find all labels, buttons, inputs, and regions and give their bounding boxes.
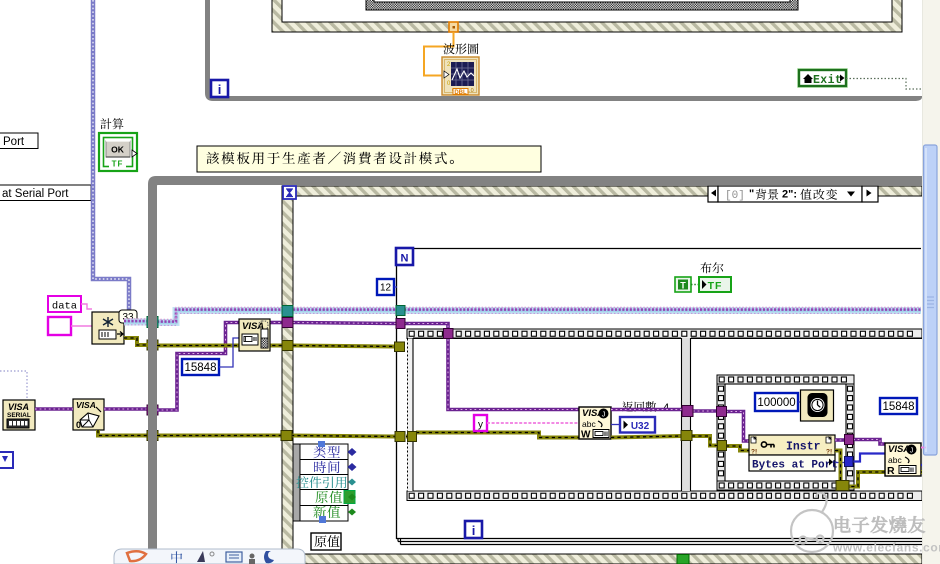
- svg-text:T: T: [680, 281, 686, 291]
- svg-text:VISA: VISA: [8, 402, 29, 412]
- svg-text:W: W: [581, 430, 591, 441]
- svg-text:／: ／: [328, 151, 342, 166]
- svg-text:15848: 15848: [883, 401, 915, 413]
- svg-text:?!: ?!: [826, 449, 832, 456]
- svg-text:J: J: [602, 412, 606, 419]
- svg-text:N: N: [401, 253, 409, 265]
- svg-text:abc: abc: [888, 455, 902, 465]
- svg-text:TF: TF: [112, 160, 124, 169]
- svg-text:?!: ?!: [751, 449, 757, 456]
- svg-text:J: J: [910, 448, 914, 455]
- svg-text:12: 12: [380, 283, 392, 294]
- svg-text:DBL: DBL: [454, 90, 467, 96]
- svg-text:www.elecfans.com: www.elecfans.com: [832, 541, 940, 555]
- svg-text:[0]: [0]: [725, 190, 745, 202]
- svg-text:R: R: [887, 465, 895, 477]
- svg-text:i: i: [472, 523, 476, 538]
- svg-text:at Serial Port: at Serial Port: [2, 188, 69, 200]
- svg-text:abc: abc: [582, 419, 596, 429]
- svg-text:OK: OK: [111, 145, 125, 155]
- svg-text:Port: Port: [3, 136, 25, 148]
- svg-text:0: 0: [76, 420, 81, 430]
- svg-text:2":: 2":: [782, 189, 797, 201]
- svg-text:。: 。: [449, 151, 463, 166]
- svg-text:y: y: [478, 420, 483, 431]
- svg-text:SERIAL: SERIAL: [7, 412, 31, 419]
- svg-text:15848: 15848: [185, 362, 217, 374]
- svg-text:100000: 100000: [757, 397, 795, 409]
- svg-text:": ": [749, 188, 754, 200]
- svg-text:data: data: [52, 301, 77, 313]
- svg-text:Instr: Instr: [786, 441, 821, 454]
- svg-text:TF: TF: [708, 280, 723, 292]
- svg-text:i: i: [218, 82, 222, 97]
- svg-text:Exit: Exit: [813, 74, 842, 87]
- svg-text:U32: U32: [631, 421, 650, 432]
- svg-text:Bytes at Port: Bytes at Port: [752, 460, 838, 472]
- svg-text:VISA: VISA: [76, 400, 96, 410]
